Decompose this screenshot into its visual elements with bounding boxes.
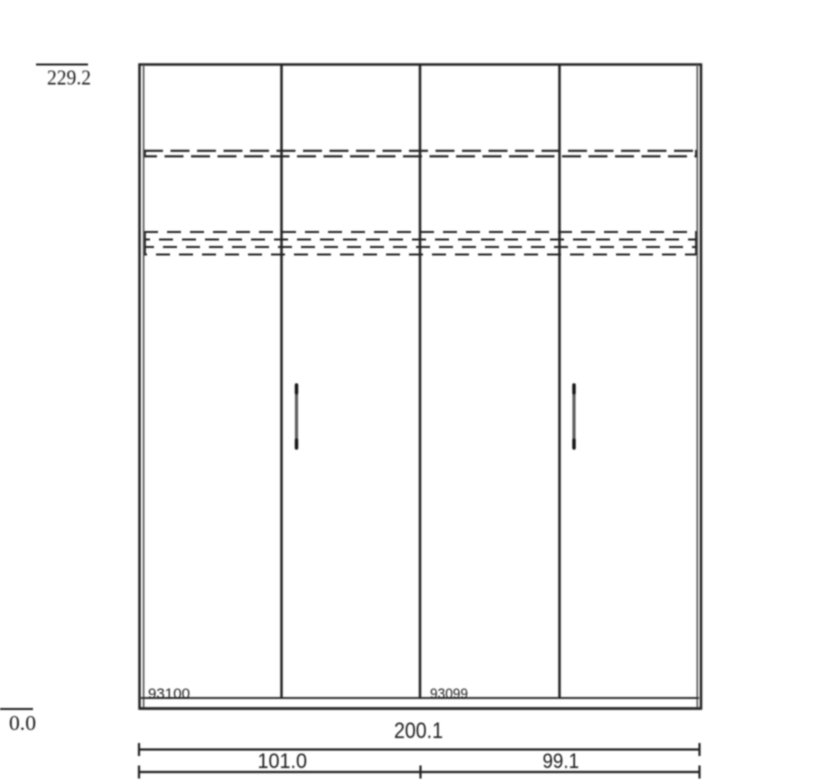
svg-text:229.2: 229.2 <box>47 66 91 90</box>
svg-text:93099: 93099 <box>430 687 468 703</box>
svg-text:101.0: 101.0 <box>258 750 308 773</box>
svg-text:99.1: 99.1 <box>543 750 580 773</box>
svg-text:200.1: 200.1 <box>394 718 443 743</box>
svg-text:93100: 93100 <box>148 687 190 703</box>
svg-text:0.0: 0.0 <box>9 711 36 735</box>
